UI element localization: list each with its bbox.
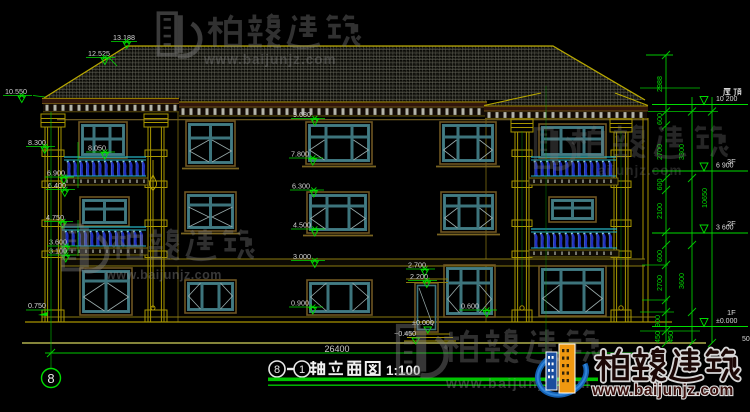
svg-text:9.680: 9.680 bbox=[293, 110, 311, 119]
svg-text:6.900: 6.900 bbox=[47, 169, 65, 178]
svg-text:aijunjz.com: aijunjz.com bbox=[598, 163, 683, 178]
svg-text:450: 450 bbox=[666, 331, 675, 343]
svg-text:2.200: 2.200 bbox=[410, 272, 428, 281]
svg-text:0.750: 0.750 bbox=[28, 301, 46, 310]
svg-text:0.600: 0.600 bbox=[461, 302, 479, 311]
svg-text:2988: 2988 bbox=[655, 76, 664, 92]
svg-text:8.050: 8.050 bbox=[88, 144, 106, 153]
svg-text:www.baijunjz.com: www.baijunjz.com bbox=[591, 382, 734, 399]
svg-text:7.800: 7.800 bbox=[291, 150, 309, 159]
svg-text:6 900: 6 900 bbox=[716, 163, 734, 170]
svg-text:1: 1 bbox=[299, 364, 305, 376]
svg-text:450: 450 bbox=[653, 331, 662, 343]
svg-text:600: 600 bbox=[655, 113, 664, 125]
svg-text:0.900: 0.900 bbox=[291, 299, 309, 308]
svg-text:600: 600 bbox=[655, 179, 664, 191]
svg-text:13.188: 13.188 bbox=[113, 33, 135, 42]
svg-text:600: 600 bbox=[655, 250, 664, 262]
svg-text:www.baijunjz.com: www.baijunjz.com bbox=[203, 52, 337, 67]
svg-text:3600: 3600 bbox=[677, 273, 686, 289]
svg-text:www.baijunjz.com: www.baijunjz.com bbox=[105, 268, 222, 282]
svg-text:2700: 2700 bbox=[655, 275, 664, 291]
svg-text:50: 50 bbox=[742, 336, 750, 343]
svg-text:4.750: 4.750 bbox=[46, 213, 64, 222]
svg-text:10 200: 10 200 bbox=[716, 96, 738, 103]
svg-text:3 600: 3 600 bbox=[716, 225, 734, 232]
svg-text:3.000: 3.000 bbox=[293, 252, 311, 261]
svg-text:8: 8 bbox=[47, 371, 54, 386]
svg-text:6.300: 6.300 bbox=[292, 182, 310, 191]
svg-text:2100: 2100 bbox=[655, 203, 664, 219]
svg-text:26400: 26400 bbox=[324, 344, 349, 354]
svg-text:900: 900 bbox=[653, 315, 662, 327]
svg-text:2.700: 2.700 bbox=[408, 261, 426, 270]
svg-text:4.500: 4.500 bbox=[293, 221, 311, 230]
svg-text:8: 8 bbox=[274, 364, 280, 376]
svg-text:1F: 1F bbox=[727, 308, 736, 317]
svg-text:10.550: 10.550 bbox=[5, 87, 27, 96]
svg-text:±0.000: ±0.000 bbox=[716, 318, 737, 325]
svg-text:8.300: 8.300 bbox=[28, 138, 46, 147]
svg-text:12.525: 12.525 bbox=[88, 49, 110, 58]
svg-text:10650: 10650 bbox=[700, 188, 709, 208]
